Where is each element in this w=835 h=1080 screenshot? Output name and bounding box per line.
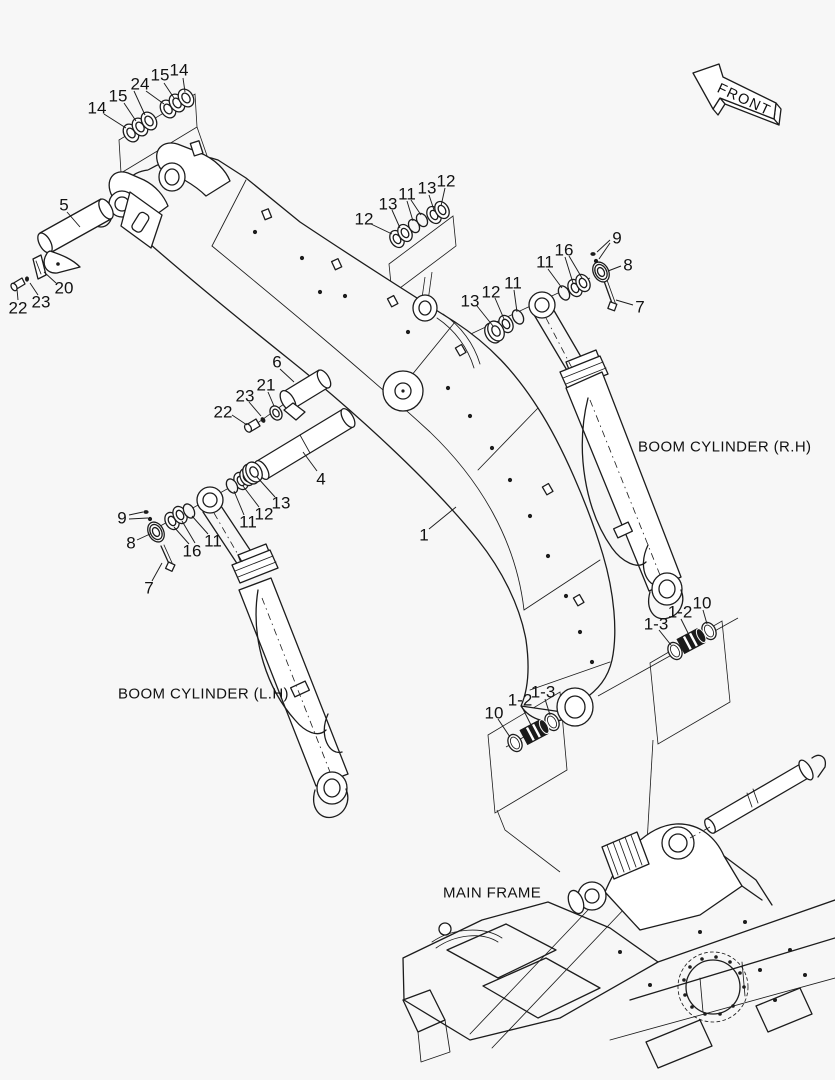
part-label-15: 15 [151,66,170,85]
pin-5-drawing [35,197,116,273]
boom-outline [124,156,615,721]
leader-line [104,114,126,128]
part-label-1-3: 1-3 [531,683,556,702]
leader-line [407,201,413,221]
part-label-1-2: 1-2 [508,691,533,710]
part-label-24: 24 [131,75,150,94]
annotation-main-frame: MAIN FRAME [443,885,541,902]
part-label-1-2: 1-2 [668,603,693,622]
leader-line [548,269,562,288]
part-label-12: 12 [482,283,501,302]
part-label-20: 20 [55,279,74,298]
leader-line [182,521,195,543]
part-label-15: 15 [109,87,128,106]
part-label-12: 12 [355,210,374,229]
annotation-boom-cylinder-lh: BOOM CYLINDER (L.H) [118,686,289,703]
part-label-23: 23 [236,387,255,406]
main-frame-drawing [403,755,835,1068]
part-label-7: 7 [635,298,644,317]
leader-line [616,300,633,305]
leader-line [129,518,148,519]
bolt-7-rh-drawing [604,280,617,311]
frame-left-deck [403,902,658,1062]
part-label-22: 22 [9,299,28,318]
part-label-9: 9 [117,509,126,528]
leader-line [371,224,392,234]
pin-23-left [25,276,29,281]
leader-line [608,266,621,271]
leader-line [129,512,143,515]
leader-line [164,83,174,98]
lh-barrel [239,578,348,786]
part-label-16: 16 [183,542,202,561]
leader-line [134,91,145,115]
parts-diagram: FRONT 1415241514121311131213121111169875… [0,0,835,1080]
diagram-canvas: FRONT 1415241514121311131213121111169875… [0,0,835,1080]
boom-drawing [90,141,615,726]
part-label-13: 13 [272,494,291,513]
leader-line [514,290,517,312]
part-label-6: 6 [272,353,281,372]
part-label-16: 16 [555,241,574,260]
frame-pin [690,755,825,838]
leader-line [232,415,247,425]
part-label-13: 13 [418,179,437,198]
part-label-11: 11 [204,532,222,551]
part-label-8: 8 [126,534,135,553]
part-label-1-3: 1-3 [644,615,669,634]
bolt-7-lh-drawing [161,545,175,571]
leader-line [137,534,150,540]
annotation-boom-cylinder-rh: BOOM CYLINDER (R.H) [638,439,811,456]
part-label-9: 9 [612,229,621,248]
bolt-circle-holes [682,955,746,1016]
bolt-22-mid-drawing [243,419,260,433]
part-label-13: 13 [461,292,480,311]
part-label-4: 4 [316,470,325,489]
leader-line [234,491,244,515]
part-label-11: 11 [504,274,522,293]
part-label-10: 10 [485,704,504,723]
part-label-23: 23 [32,293,51,312]
leader-line [124,103,136,121]
part-label-10: 10 [693,594,712,613]
part-label-11: 11 [398,185,416,204]
part-label-8: 8 [623,256,632,275]
part-label-14: 14 [88,99,107,118]
front-arrow: FRONT [693,64,781,125]
part-label-5: 5 [59,196,68,215]
part-label-11: 11 [536,253,554,272]
o-ring-thin [505,732,525,754]
part-label-12: 12 [437,172,456,191]
part-label-1: 1 [419,526,428,545]
part-label-21: 21 [257,376,276,395]
part-label-14: 14 [170,61,189,80]
part-label-22: 22 [214,403,233,422]
part-label-7: 7 [144,579,153,598]
part-label-13: 13 [379,195,398,214]
leader-line [303,452,317,471]
